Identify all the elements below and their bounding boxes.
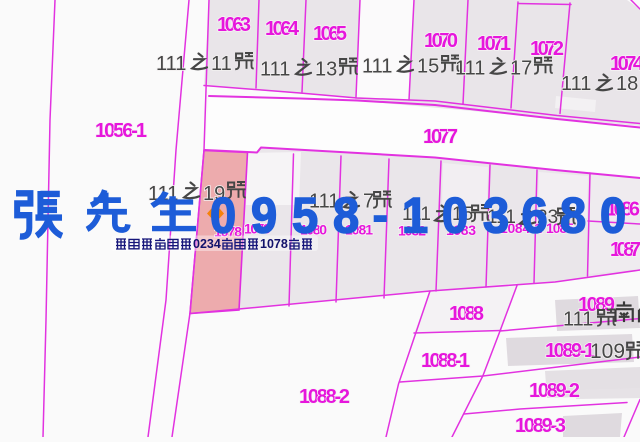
svg-text:13: 13 bbox=[315, 59, 337, 81]
svg-text:15: 15 bbox=[417, 56, 439, 78]
svg-text:1071: 1071 bbox=[477, 33, 511, 55]
svg-text:7: 7 bbox=[363, 191, 374, 213]
svg-text:3: 3 bbox=[483, 188, 509, 244]
svg-text:1089-1: 1089-1 bbox=[545, 340, 595, 362]
svg-text:8: 8 bbox=[560, 188, 586, 244]
svg-text:0: 0 bbox=[442, 188, 468, 244]
svg-text:1074: 1074 bbox=[610, 53, 640, 75]
svg-text:0: 0 bbox=[210, 188, 236, 244]
svg-text:11: 11 bbox=[211, 53, 232, 75]
svg-text:1: 1 bbox=[402, 188, 428, 244]
svg-text:1088-1: 1088-1 bbox=[421, 350, 470, 372]
svg-text:1064: 1064 bbox=[265, 18, 300, 40]
svg-text:1088-2: 1088-2 bbox=[299, 386, 350, 408]
svg-text:1077: 1077 bbox=[423, 126, 458, 148]
svg-text:9: 9 bbox=[251, 188, 277, 244]
svg-text:0234: 0234 bbox=[193, 237, 221, 251]
svg-text:17: 17 bbox=[510, 58, 532, 80]
svg-text:5: 5 bbox=[292, 188, 318, 244]
svg-text:111: 111 bbox=[362, 56, 392, 78]
svg-text:6: 6 bbox=[522, 188, 548, 244]
svg-text:111: 111 bbox=[260, 59, 290, 81]
svg-text:109: 109 bbox=[590, 340, 625, 363]
svg-text:111: 111 bbox=[156, 53, 186, 75]
svg-text:111: 111 bbox=[563, 309, 593, 331]
svg-text:0: 0 bbox=[600, 188, 626, 244]
svg-text:1070: 1070 bbox=[424, 30, 458, 52]
svg-text:1089-2: 1089-2 bbox=[529, 380, 580, 402]
svg-text:1078: 1078 bbox=[260, 237, 288, 251]
svg-text:1056-1: 1056-1 bbox=[95, 120, 147, 142]
svg-text:1089-3: 1089-3 bbox=[515, 415, 566, 437]
svg-text:1063: 1063 bbox=[217, 14, 251, 36]
svg-text:8: 8 bbox=[333, 188, 359, 244]
svg-text:18: 18 bbox=[616, 73, 638, 95]
svg-text:111: 111 bbox=[455, 58, 485, 80]
svg-text:1065: 1065 bbox=[313, 23, 347, 45]
svg-text:111: 111 bbox=[561, 73, 591, 95]
svg-text:1088: 1088 bbox=[449, 303, 484, 325]
